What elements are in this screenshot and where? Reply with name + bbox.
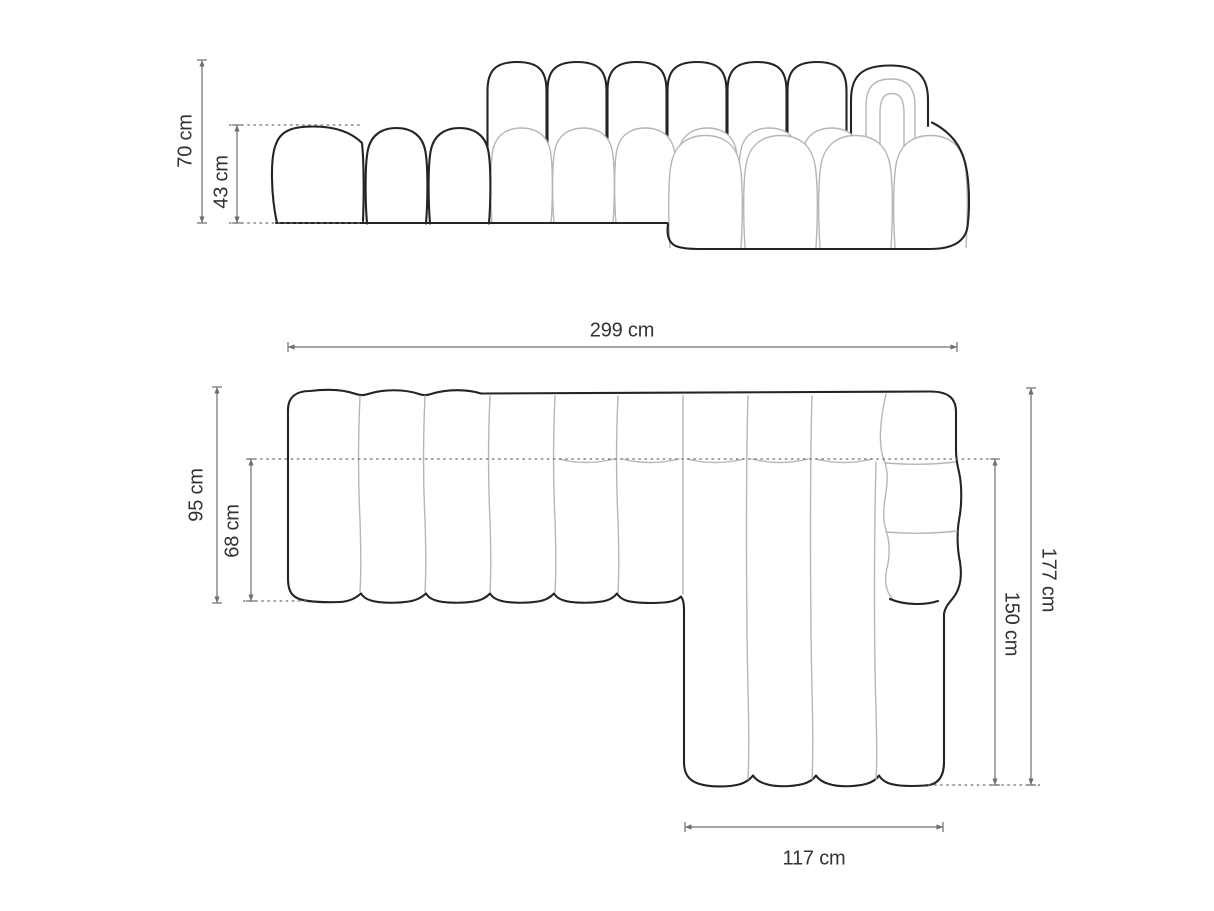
- sofa-dimension-diagram: 70 cm 43 cm 299 cm 95 cm 68 cm 177 cm 15…: [0, 0, 1214, 911]
- chaise-cushion: [744, 136, 818, 248]
- plan-chaise-length-label: 150 cm: [1000, 592, 1023, 656]
- front-total-height-label: 70 cm: [175, 114, 198, 167]
- plan-right-depth-label: 177 cm: [1037, 548, 1060, 612]
- chaise-cushion: [819, 136, 893, 248]
- plan-chaise-width-label: 117 cm: [783, 848, 846, 871]
- plan-left-depth-label: 95 cm: [186, 468, 209, 521]
- seat-cushion: [366, 128, 428, 224]
- front-seat-height-label: 43 cm: [211, 155, 234, 208]
- chaise-cushion: [894, 136, 968, 248]
- chaise-cushion: [669, 136, 743, 248]
- seat-cushion-first: [272, 127, 364, 224]
- plan-left-seat-depth-label: 68 cm: [222, 504, 245, 557]
- seat-cushion: [553, 128, 615, 224]
- plan-total-width-label: 299 cm: [590, 320, 654, 343]
- plan-view: [217, 347, 1040, 827]
- front-view: [202, 60, 969, 249]
- seat-cushion: [429, 128, 491, 224]
- plan-outline: [288, 390, 961, 787]
- seat-cushion: [615, 128, 677, 224]
- seat-cushion: [491, 128, 553, 224]
